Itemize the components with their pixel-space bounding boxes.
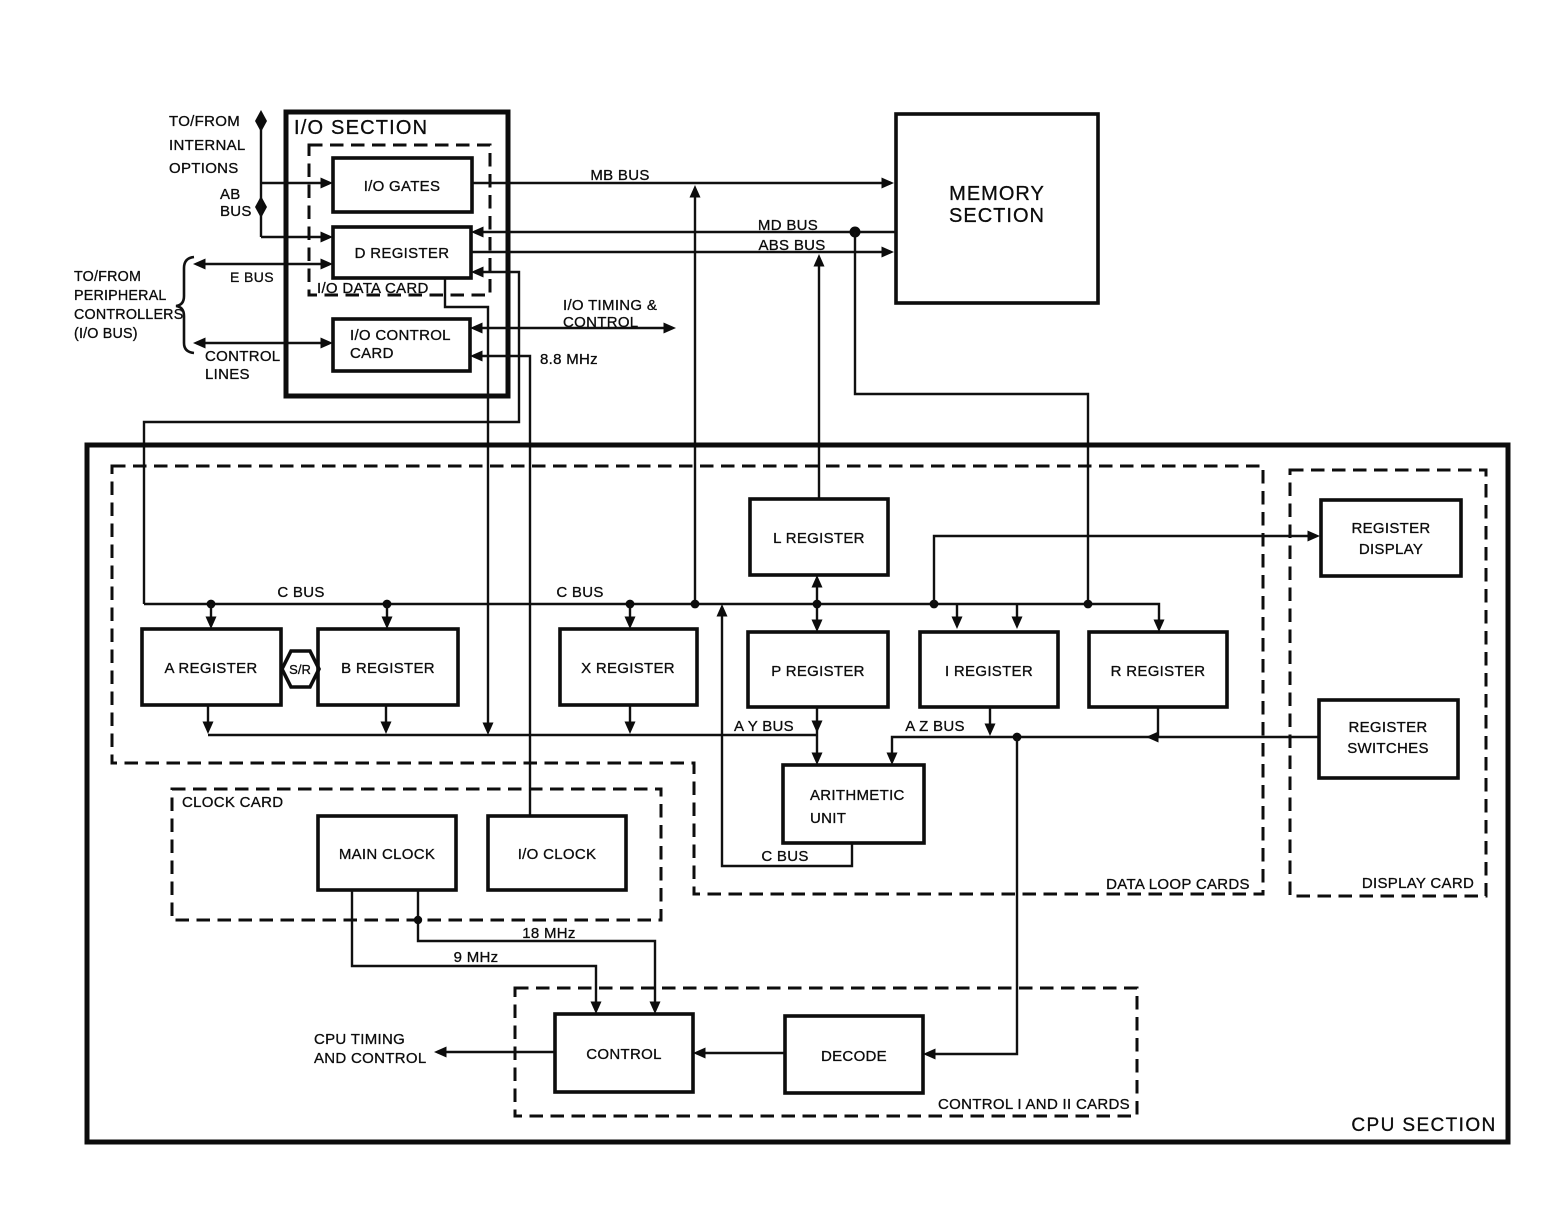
svg-text:A Z BUS: A Z BUS xyxy=(905,718,965,735)
svg-text:AND CONTROL: AND CONTROL xyxy=(314,1050,426,1067)
svg-text:DECODE: DECODE xyxy=(821,1048,887,1065)
svg-text:REGISTER: REGISTER xyxy=(1348,719,1427,736)
svg-text:L REGISTER: L REGISTER xyxy=(773,530,865,547)
svg-text:DATA LOOP CARDS: DATA LOOP CARDS xyxy=(1106,876,1250,893)
svg-text:MEMORY: MEMORY xyxy=(949,183,1045,205)
svg-text:AB: AB xyxy=(220,186,241,203)
svg-text:A REGISTER: A REGISTER xyxy=(164,660,257,677)
svg-text:ABS BUS: ABS BUS xyxy=(758,237,825,254)
svg-text:LINES: LINES xyxy=(205,366,250,383)
svg-text:UNIT: UNIT xyxy=(810,810,846,827)
svg-text:9 MHz: 9 MHz xyxy=(454,949,499,966)
svg-text:I/O CLOCK: I/O CLOCK xyxy=(518,846,597,863)
svg-text:R REGISTER: R REGISTER xyxy=(1111,663,1206,680)
svg-text:DISPLAY: DISPLAY xyxy=(1359,541,1423,558)
svg-text:CONTROL I AND II CARDS: CONTROL I AND II CARDS xyxy=(938,1096,1130,1113)
svg-text:CONTROL: CONTROL xyxy=(563,314,638,331)
svg-text:18 MHz: 18 MHz xyxy=(522,925,575,942)
svg-text:S/R: S/R xyxy=(289,662,311,677)
svg-text:C BUS: C BUS xyxy=(556,584,603,601)
svg-text:OPTIONS: OPTIONS xyxy=(169,160,239,177)
svg-text:B REGISTER: B REGISTER xyxy=(341,660,435,677)
svg-text:INTERNAL: INTERNAL xyxy=(169,137,246,154)
svg-text:D REGISTER: D REGISTER xyxy=(355,245,450,262)
svg-text:I/O TIMING &: I/O TIMING & xyxy=(563,297,657,314)
svg-text:CARD: CARD xyxy=(350,345,394,362)
svg-text:PERIPHERAL: PERIPHERAL xyxy=(74,288,167,304)
svg-text:MD BUS: MD BUS xyxy=(758,217,818,234)
svg-text:TO/FROM: TO/FROM xyxy=(169,113,240,130)
svg-text:I/O GATES: I/O GATES xyxy=(364,178,441,195)
svg-text:CONTROL: CONTROL xyxy=(205,348,280,365)
svg-text:E BUS: E BUS xyxy=(230,269,274,285)
svg-text:MAIN CLOCK: MAIN CLOCK xyxy=(339,846,435,863)
svg-text:P REGISTER: P REGISTER xyxy=(771,663,865,680)
svg-text:ARITHMETIC: ARITHMETIC xyxy=(810,787,905,804)
svg-text:REGISTER: REGISTER xyxy=(1351,520,1430,537)
svg-text:DISPLAY CARD: DISPLAY CARD xyxy=(1362,875,1474,892)
svg-text:I/O DATA CARD: I/O DATA CARD xyxy=(317,280,429,297)
svg-text:X REGISTER: X REGISTER xyxy=(581,660,675,677)
svg-text:I/O CONTROL: I/O CONTROL xyxy=(350,327,451,344)
svg-text:8.8 MHz: 8.8 MHz xyxy=(540,351,598,368)
svg-text:TO/FROM: TO/FROM xyxy=(74,269,141,285)
svg-text:CPU TIMING: CPU TIMING xyxy=(314,1031,405,1048)
svg-text:SWITCHES: SWITCHES xyxy=(1347,740,1429,757)
svg-text:A Y BUS: A Y BUS xyxy=(734,718,794,735)
svg-text:I REGISTER: I REGISTER xyxy=(945,663,1033,680)
svg-text:CPU SECTION: CPU SECTION xyxy=(1351,1115,1496,1136)
svg-text:CONTROLLERS: CONTROLLERS xyxy=(74,307,183,323)
svg-text:C BUS: C BUS xyxy=(761,848,808,865)
svg-text:SECTION: SECTION xyxy=(949,205,1045,227)
svg-text:BUS: BUS xyxy=(220,203,252,220)
svg-text:CONTROL: CONTROL xyxy=(586,1046,661,1063)
svg-text:I/O SECTION: I/O SECTION xyxy=(294,117,428,139)
svg-text:(I/O BUS): (I/O BUS) xyxy=(74,326,138,342)
svg-text:MB BUS: MB BUS xyxy=(590,167,649,184)
svg-text:CLOCK CARD: CLOCK CARD xyxy=(182,794,283,811)
svg-text:C BUS: C BUS xyxy=(277,584,324,601)
